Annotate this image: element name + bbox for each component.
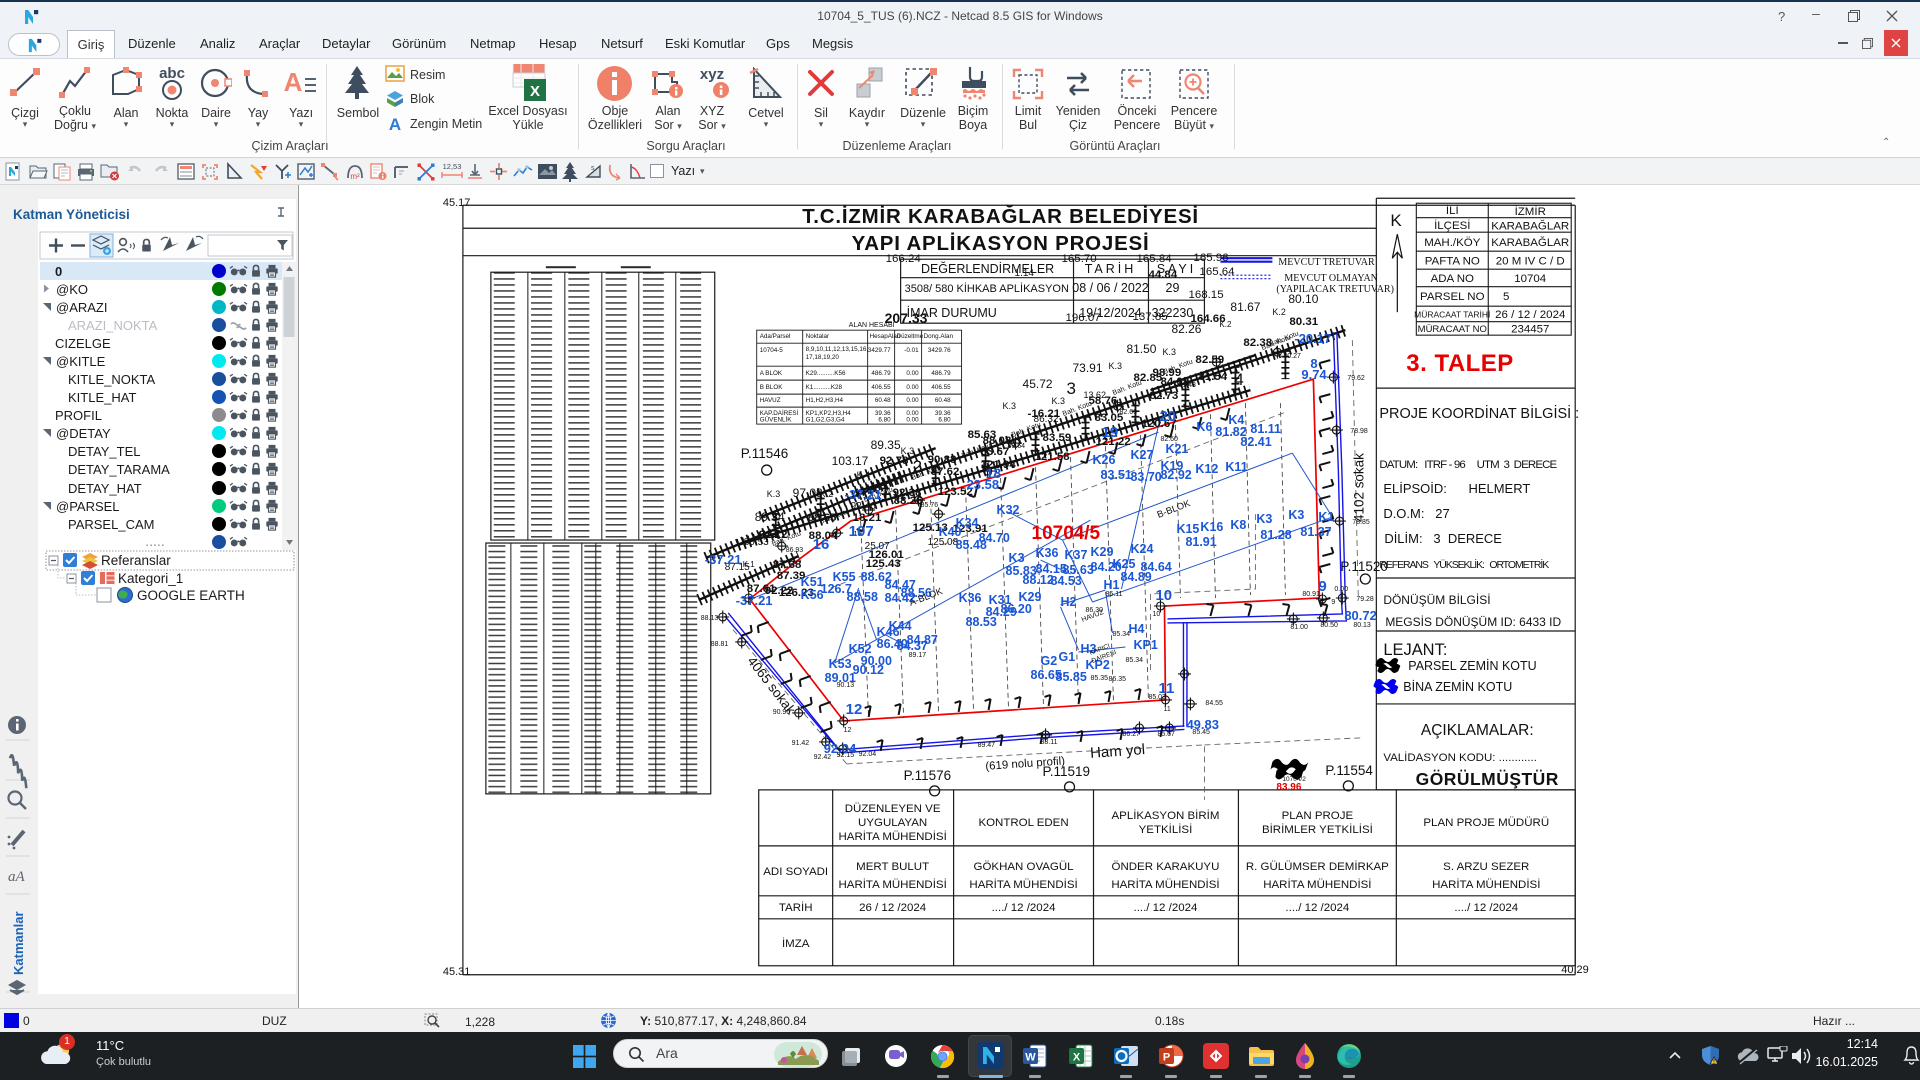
svg-text:K36: K36 <box>1036 546 1059 560</box>
svg-text:H4: H4 <box>1128 622 1144 636</box>
svg-text:K19: K19 <box>1160 459 1183 473</box>
svg-text:.....: ..... <box>145 533 164 549</box>
svg-text:88.26: 88.26 <box>894 495 923 507</box>
svg-text:89.34: 89.34 <box>755 510 785 524</box>
svg-text:89.35: 89.35 <box>871 438 901 452</box>
svg-text:81.67: 81.67 <box>1230 300 1260 314</box>
svg-text:82.41: 82.41 <box>1240 435 1271 449</box>
svg-text:26 / 12 /2024: 26 / 12 /2024 <box>859 902 927 914</box>
svg-text:AÇIKLAMALAR:: AÇIKLAMALAR: <box>1421 722 1534 739</box>
svg-text:B-BLOK: B-BLOK <box>1156 498 1193 521</box>
svg-text:K1: K1 <box>1318 510 1334 524</box>
svg-text:3429.77: 3429.77 <box>868 347 891 354</box>
svg-text:@DETAY: @DETAY <box>56 426 111 441</box>
svg-text:X: X <box>530 83 540 100</box>
svg-text:PROFIL: PROFIL <box>55 408 102 423</box>
svg-text:APLİKASYON BİRİM: APLİKASYON BİRİM <box>1112 809 1220 822</box>
svg-text:KARABAĞLAR: KARABAĞLAR <box>1491 236 1569 249</box>
svg-text:92.04: 92.04 <box>859 751 877 758</box>
svg-text:0.00: 0.00 <box>906 384 919 391</box>
svg-text:@ARAZI: @ARAZI <box>56 300 107 315</box>
svg-text:T.C.İZMİR KARABAĞLAR BELEDİYES: T.C.İZMİR KARABAĞLAR BELEDİYESİ <box>802 204 1199 228</box>
svg-text:88.12: 88.12 <box>1023 573 1054 587</box>
svg-text:88.81: 88.81 <box>711 641 729 648</box>
svg-text:80.91: 80.91 <box>1302 591 1320 598</box>
svg-text:26 / 12 / 2024: 26 / 12 / 2024 <box>1495 309 1566 321</box>
svg-text:-37.21: -37.21 <box>705 552 742 567</box>
svg-text:KARABAĞLAR: KARABAĞLAR <box>1491 220 1569 233</box>
svg-text:MEGSİS DÖNÜŞÜM ID: 6433 ID: MEGSİS DÖNÜŞÜM ID: 6433 ID <box>1385 615 1561 629</box>
svg-text:İZMİR: İZMİR <box>1515 205 1546 218</box>
svg-text:-0.01: -0.01 <box>904 347 919 354</box>
svg-text:K16: K16 <box>1200 520 1223 534</box>
svg-text:84.87: 84.87 <box>907 633 938 647</box>
svg-text:79.28: 79.28 <box>1356 596 1374 603</box>
svg-text:YAPI APLİKASYON PROJESİ: YAPI APLİKASYON PROJESİ <box>852 232 1150 255</box>
svg-text:H1: H1 <box>1104 578 1120 592</box>
svg-text:84.55: 84.55 <box>1205 700 1223 707</box>
svg-text:81.91: 81.91 <box>1185 535 1216 549</box>
svg-text:LEJANT:: LEJANT: <box>1383 641 1447 659</box>
svg-text:92.46: 92.46 <box>851 501 876 512</box>
svg-text:81.54: 81.54 <box>1198 371 1227 383</box>
svg-text:@KITLE: @KITLE <box>56 354 106 369</box>
svg-text:165.84: 165.84 <box>1136 253 1172 265</box>
svg-text:REFERANS YÜKSEKLİK: ORTOME: REFERANS YÜKSEKLİK: ORTOMETRİK <box>1379 558 1549 571</box>
svg-text:K.2: K.2 <box>1272 307 1286 317</box>
svg-text:137.85: 137.85 <box>1132 311 1167 323</box>
svg-text:ADI SOYADI: ADI SOYADI <box>763 866 828 878</box>
svg-text:83.70: 83.70 <box>1130 470 1161 484</box>
svg-text:19: 19 <box>1102 424 1119 441</box>
svg-text:KP1: KP1 <box>1133 638 1157 652</box>
svg-text:K25: K25 <box>1112 557 1135 571</box>
svg-text:83.51: 83.51 <box>1101 468 1132 482</box>
svg-text:BİNA ZEMİN KOTU: BİNA ZEMİN KOTU <box>1403 680 1512 694</box>
svg-text:90.12: 90.12 <box>853 663 884 677</box>
svg-text:16: 16 <box>813 536 830 553</box>
svg-text:A: A <box>284 67 303 97</box>
svg-text:10704-5: 10704-5 <box>760 347 784 354</box>
svg-text:Katman Yöneticisi: Katman Yöneticisi <box>13 207 130 222</box>
svg-text:0.00: 0.00 <box>906 397 919 404</box>
svg-text:-37.21: -37.21 <box>845 487 882 502</box>
svg-text:K: K <box>1390 211 1402 230</box>
svg-text:23.58: 23.58 <box>967 477 1000 492</box>
svg-text:K36: K36 <box>959 591 982 605</box>
svg-text:0.00: 0.00 <box>1334 586 1348 593</box>
svg-text:xyz: xyz <box>700 66 724 83</box>
svg-text:KONTROL EDEN: KONTROL EDEN <box>978 817 1068 829</box>
svg-text:KITLE_HAT: KITLE_HAT <box>68 390 136 405</box>
svg-text:K34: K34 <box>956 516 979 530</box>
svg-text:12: 12 <box>846 701 863 718</box>
svg-text:80.10: 80.10 <box>1288 292 1318 306</box>
svg-text:60.48: 60.48 <box>875 397 891 404</box>
svg-text:B BLOK: B BLOK <box>760 384 784 391</box>
svg-text:K8: K8 <box>1230 518 1246 532</box>
svg-text:81.11: 81.11 <box>1250 422 1281 436</box>
svg-text:YETKİLİSİ: YETKİLİSİ <box>1139 823 1193 836</box>
svg-text:abc: abc <box>159 65 185 82</box>
svg-text:83.59: 83.59 <box>1043 432 1072 444</box>
svg-text:92.04: 92.04 <box>824 741 857 756</box>
svg-text:PROJE KOORDİNAT BİLGİSİ :: PROJE KOORDİNAT BİLGİSİ : <box>1379 404 1579 422</box>
svg-text:0.00: 0.00 <box>906 370 919 377</box>
svg-text:84.53: 84.53 <box>1051 574 1082 588</box>
svg-text:PARSEL_CAM: PARSEL_CAM <box>68 517 154 532</box>
svg-text:K15: K15 <box>1176 522 1199 536</box>
svg-text:@KO: @KO <box>56 282 88 297</box>
svg-text:11: 11 <box>1163 706 1170 713</box>
svg-text:HARİTA MÜHENDİSİ: HARİTA MÜHENDİSİ <box>1432 878 1540 891</box>
svg-text:-16.21: -16.21 <box>1028 408 1061 420</box>
svg-text:K.3: K.3 <box>1003 401 1016 411</box>
svg-text:125.43: 125.43 <box>866 558 901 570</box>
svg-text:K37: K37 <box>1065 548 1088 562</box>
svg-text:..../ 12 /2024: ..../ 12 /2024 <box>1134 902 1198 914</box>
svg-text:W: W <box>1025 1052 1036 1064</box>
svg-text:DETAY_TEL: DETAY_TEL <box>68 444 140 459</box>
svg-text:DÜZENLEYEN VE: DÜZENLEYEN VE <box>845 803 941 815</box>
svg-text:3. TALEP: 3. TALEP <box>1406 350 1513 377</box>
svg-text:84.70: 84.70 <box>979 531 1010 545</box>
svg-text:12,53: 12,53 <box>443 162 462 171</box>
svg-text:DETAY_TARAMA: DETAY_TARAMA <box>68 462 170 477</box>
svg-text:R. GÜLÜMSER DEMİRKAP: R. GÜLÜMSER DEMİRKAP <box>1246 860 1389 873</box>
svg-text:Kategori_1: Kategori_1 <box>118 571 183 586</box>
svg-text:0.00: 0.00 <box>906 417 919 424</box>
svg-text:45.17: 45.17 <box>443 197 471 209</box>
svg-text:K24: K24 <box>1130 542 1153 556</box>
svg-text:K.3: K.3 <box>1162 347 1176 357</box>
svg-text:P.11520: P.11520 <box>1340 559 1388 574</box>
svg-text:45.72: 45.72 <box>1023 377 1053 391</box>
svg-text:80.50: 80.50 <box>1320 622 1338 629</box>
svg-text:85.76: 85.76 <box>921 502 939 509</box>
svg-text:-20.17: -20.17 <box>1294 331 1331 346</box>
svg-text:82.59: 82.59 <box>1195 354 1224 366</box>
svg-text:..../ 12 /2024: ..../ 12 /2024 <box>992 902 1056 914</box>
svg-text:81.43: 81.43 <box>1178 382 1196 389</box>
svg-text:85.67: 85.67 <box>1157 731 1175 738</box>
svg-text:80.13: 80.13 <box>1353 622 1371 629</box>
svg-text:8,9,10,11,12,13,15,16,: 8,9,10,11,12,13,15,16, <box>806 346 869 353</box>
svg-text:196.07: 196.07 <box>1066 312 1101 324</box>
svg-text:Bah. Kotu: Bah. Kotu <box>1112 379 1143 397</box>
svg-text:X: X <box>1073 1052 1081 1064</box>
svg-text:K.2: K.2 <box>820 489 834 499</box>
svg-text:PLAN PROJE: PLAN PROJE <box>1282 810 1354 822</box>
svg-text:165.70: 165.70 <box>1062 253 1097 265</box>
svg-text:88.53: 88.53 <box>966 615 997 629</box>
svg-text:H1,H2,H3,H4: H1,H2,H3,H4 <box>806 397 844 404</box>
svg-text:20: 20 <box>1159 408 1176 425</box>
svg-text:ÖNDER KARAKUYU: ÖNDER KARAKUYU <box>1112 861 1220 873</box>
svg-text:MEVCUT TRETUVAR: MEVCUT TRETUVAR <box>1278 257 1375 268</box>
svg-text:92.78: 92.78 <box>880 455 909 467</box>
svg-text:82.73: 82.73 <box>1149 390 1178 402</box>
svg-text:K3: K3 <box>1009 551 1025 565</box>
svg-text:UYGULAYAN: UYGULAYAN <box>858 817 927 829</box>
svg-text:HARİTA MÜHENDİSİ: HARİTA MÜHENDİSİ <box>839 830 947 843</box>
svg-text:A BLOK: A BLOK <box>760 370 783 377</box>
svg-text:Ham yol: Ham yol <box>1090 741 1146 762</box>
svg-text:K21: K21 <box>1165 442 1188 456</box>
svg-text:s: s <box>591 165 595 172</box>
svg-text:MÜRACAAT NO: MÜRACAAT NO <box>1418 324 1487 335</box>
svg-text:K1..........K28: K1..........K28 <box>806 384 843 391</box>
svg-text:12: 12 <box>844 727 852 734</box>
svg-text:89.01: 89.01 <box>825 671 856 685</box>
svg-text:44.84: 44.84 <box>1148 269 1177 281</box>
svg-text:234457: 234457 <box>1511 324 1549 336</box>
svg-text:84.64: 84.64 <box>1140 560 1171 574</box>
svg-text:..../ 12 /2024: ..../ 12 /2024 <box>1285 902 1349 914</box>
svg-text:PLAN PROJE MÜDÜRÜ: PLAN PROJE MÜDÜRÜ <box>1423 817 1549 829</box>
svg-text:HAVUZ: HAVUZ <box>760 397 781 404</box>
svg-text:91.42: 91.42 <box>792 740 810 747</box>
svg-text:K.3: K.3 <box>767 489 781 499</box>
svg-text:121.58: 121.58 <box>1035 451 1071 463</box>
svg-text:İLÇESİ: İLÇESİ <box>1434 219 1470 232</box>
svg-text:A: A <box>389 115 401 133</box>
svg-text:78.98: 78.98 <box>1350 428 1368 435</box>
svg-text:486.79: 486.79 <box>871 370 891 377</box>
svg-text:ARAZI_NOKTA: ARAZI_NOKTA <box>68 318 158 333</box>
svg-text:P.11576: P.11576 <box>904 768 952 783</box>
svg-text:85.35: 85.35 <box>1091 675 1109 682</box>
svg-text:GÖRÜLMÜŞTÜR: GÖRÜLMÜŞTÜR <box>1416 769 1559 789</box>
svg-text:20 M IV C / D: 20 M IV C / D <box>1496 256 1565 268</box>
svg-text:BİRİMLER YETKİLİSİ: BİRİMLER YETKİLİSİ <box>1262 823 1373 836</box>
svg-text:D.O.M: 27: D.O.M: 27 <box>1383 506 1449 521</box>
svg-text:ADA NO: ADA NO <box>1431 273 1474 285</box>
svg-text:K32: K32 <box>997 503 1020 517</box>
svg-text:PAFTA NO: PAFTA NO <box>1425 256 1480 268</box>
svg-text:17,18,19,20: 17,18,19,20 <box>806 354 840 361</box>
svg-text:58.76: 58.76 <box>1089 395 1118 407</box>
svg-text:MERT BULUT: MERT BULUT <box>856 861 929 873</box>
svg-text:164.66: 164.66 <box>1190 313 1225 325</box>
svg-text:85.34: 85.34 <box>1112 631 1130 638</box>
svg-text:90.88: 90.88 <box>928 454 957 466</box>
svg-text:HARİTA MÜHENDİSİ: HARİTA MÜHENDİSİ <box>839 878 947 891</box>
svg-text:HARİTA MÜHENDİSİ: HARİTA MÜHENDİSİ <box>969 878 1077 891</box>
svg-text:K11: K11 <box>1225 460 1247 474</box>
svg-text:S. ARZU SEZER: S. ARZU SEZER <box>1443 861 1529 873</box>
svg-text:6.80: 6.80 <box>878 417 891 424</box>
svg-text:8: 8 <box>1310 356 1317 371</box>
svg-text:VALİDASYON KODU: ............: VALİDASYON KODU: ............ <box>1383 751 1537 764</box>
svg-text:aA: aA <box>8 869 26 885</box>
svg-text:DETAY_HAT: DETAY_HAT <box>68 481 142 496</box>
svg-text:DATUM: ITRF - 96 UTM 3: DATUM: ITRF - 96 UTM 3 DERECE <box>1379 459 1557 471</box>
svg-text:80.31: 80.31 <box>1289 316 1318 328</box>
svg-text:K.1: K.1 <box>743 560 756 569</box>
svg-text:G1: G1 <box>1059 650 1076 664</box>
svg-text:165.64: 165.64 <box>1199 266 1235 278</box>
svg-text:80.27: 80.27 <box>1283 353 1301 360</box>
svg-text:126.7: 126.7 <box>821 582 852 596</box>
svg-text:CIZELGE: CIZELGE <box>55 336 111 351</box>
svg-text:168.15: 168.15 <box>1188 289 1223 301</box>
svg-text:K3: K3 <box>1256 512 1272 526</box>
svg-text:G2: G2 <box>1041 654 1058 668</box>
svg-text:m²: m² <box>350 172 360 181</box>
svg-text:GOOGLE EARTH: GOOGLE EARTH <box>137 588 245 603</box>
svg-text:5: 5 <box>1503 291 1509 303</box>
svg-text:H2: H2 <box>1061 595 1077 609</box>
svg-text:10704/5: 10704/5 <box>1032 523 1101 544</box>
svg-text:45.31: 45.31 <box>443 966 471 978</box>
svg-text:K26: K26 <box>1093 453 1116 467</box>
svg-text:Düzeltme: Düzeltme <box>897 333 924 340</box>
svg-text:486.79: 486.79 <box>931 370 951 377</box>
svg-text:406.55: 406.55 <box>931 384 951 391</box>
svg-text:İLİ: İLİ <box>1446 204 1459 217</box>
svg-text:83.64: 83.64 <box>1008 443 1026 450</box>
svg-text:Dong.Alan: Dong.Alan <box>924 333 954 340</box>
svg-text:-37.21: -37.21 <box>736 593 773 608</box>
svg-text:107: 107 <box>849 523 874 540</box>
svg-text:86.35: 86.35 <box>1109 676 1127 683</box>
svg-text:K.3: K.3 <box>1109 361 1123 371</box>
svg-text:GÖKHAN OVAGÜL: GÖKHAN OVAGÜL <box>974 861 1074 873</box>
svg-text:K.4: K.4 <box>857 470 870 480</box>
svg-text:G1,G2,G3,G4: G1,G2,G3,G4 <box>806 417 845 424</box>
svg-text:9: 9 <box>1331 599 1335 606</box>
svg-text:Referanslar: Referanslar <box>101 553 171 568</box>
svg-text:K53: K53 <box>829 657 852 671</box>
svg-text:3508/ 580 KİHKAB APLİKASYON: 3508/ 580 KİHKAB APLİKASYON <box>905 282 1069 295</box>
svg-text:85.11: 85.11 <box>1106 591 1123 598</box>
svg-text:P.11546: P.11546 <box>741 446 788 461</box>
svg-text:89.17: 89.17 <box>909 652 927 659</box>
svg-text:K27: K27 <box>1130 448 1153 462</box>
svg-text:165.96: 165.96 <box>1193 252 1228 264</box>
svg-text:ELİPSOİD: HELMERT: ELİPSOİD: HELMERT <box>1383 481 1530 496</box>
svg-text:DÖNÜŞÜM BİLGİSİ: DÖNÜŞÜM BİLGİSİ <box>1383 593 1490 607</box>
svg-text:11: 11 <box>1158 680 1174 697</box>
svg-text:83.96: 83.96 <box>1276 782 1301 793</box>
svg-text:GÜVENLİK: GÜVENLİK <box>760 415 793 424</box>
svg-text:..../ 12 /2024: ..../ 12 /2024 <box>1454 902 1518 914</box>
svg-text:86.27: 86.27 <box>1122 731 1140 738</box>
svg-text:3429.76: 3429.76 <box>928 347 951 354</box>
svg-text:Noktalar: Noktalar <box>806 333 829 340</box>
svg-text:207.33: 207.33 <box>885 310 928 326</box>
svg-text:97.08: 97.08 <box>793 486 823 500</box>
svg-text:K12: K12 <box>1195 462 1218 476</box>
svg-text:K29..........K56: K29..........K56 <box>806 370 846 377</box>
svg-text:DEĞERLENDİRMELER: DEĞERLENDİRMELER <box>921 261 1054 276</box>
svg-text:!: ! <box>1713 1059 1715 1065</box>
svg-text:73.91: 73.91 <box>1073 361 1103 375</box>
svg-text:KITLE_NOKTA: KITLE_NOKTA <box>68 372 156 387</box>
svg-text:49.83: 49.83 <box>1186 717 1219 732</box>
svg-text:PARSEL NO: PARSEL NO <box>1420 291 1485 303</box>
svg-text:K29: K29 <box>1091 545 1114 559</box>
svg-text:10: 10 <box>1155 587 1172 604</box>
svg-text:82.66: 82.66 <box>1119 409 1137 416</box>
svg-text:10704: 10704 <box>1514 273 1547 285</box>
svg-text:MEVCUT OLMAYAN: MEVCUT OLMAYAN <box>1284 273 1377 284</box>
svg-text:60.48: 60.48 <box>935 397 951 404</box>
svg-text:166.24: 166.24 <box>886 253 922 265</box>
svg-text:K6: K6 <box>1196 420 1212 434</box>
svg-text:81.50: 81.50 <box>1126 342 1156 356</box>
svg-text:PARSEL ZEMİN KOTU: PARSEL ZEMİN KOTU <box>1408 659 1536 673</box>
svg-text:80.72: 80.72 <box>1344 608 1377 623</box>
svg-text:6.80: 6.80 <box>938 417 951 424</box>
svg-text:86.20: 86.20 <box>1001 602 1032 616</box>
svg-text:9: 9 <box>1318 578 1326 595</box>
svg-text:10: 10 <box>1152 611 1160 618</box>
svg-text:@PARSEL: @PARSEL <box>56 499 120 514</box>
svg-text:4065 sokak: 4065 sokak <box>744 654 798 718</box>
svg-text:88.13: 88.13 <box>701 615 719 622</box>
svg-text:Katmanlar: Katmanlar <box>11 911 26 975</box>
svg-text:89.47: 89.47 <box>978 742 996 749</box>
svg-text:81.37: 81.37 <box>1300 525 1331 539</box>
svg-text:103.17: 103.17 <box>832 454 869 468</box>
svg-text:P.11554: P.11554 <box>1325 763 1373 778</box>
svg-text:88.11: 88.11 <box>1041 739 1058 746</box>
svg-text:Ada/Parsel: Ada/Parsel <box>760 333 791 340</box>
svg-text:3: 3 <box>1067 379 1076 398</box>
svg-text:TARİH: TARİH <box>779 901 813 914</box>
svg-text:81.28: 81.28 <box>1260 528 1291 542</box>
svg-text:HARİTA MÜHENDİSİ: HARİTA MÜHENDİSİ <box>1111 878 1219 891</box>
svg-text:85.34: 85.34 <box>1125 657 1143 664</box>
svg-text:0: 0 <box>55 264 62 279</box>
svg-text:P: P <box>1163 1052 1170 1064</box>
svg-text:08 / 06 / 2022: 08 / 06 / 2022 <box>1072 281 1148 295</box>
svg-text:K.3: K.3 <box>1052 396 1065 406</box>
svg-text:HARİTA MÜHENDİSİ: HARİTA MÜHENDİSİ <box>1263 878 1371 891</box>
svg-text:4102 sokak: 4102 sokak <box>1351 453 1366 522</box>
svg-text:81.00: 81.00 <box>1290 624 1308 631</box>
svg-text:4: 4 <box>1234 370 1243 389</box>
svg-text:85.85: 85.85 <box>1056 670 1087 684</box>
svg-text:MAH./KÖY: MAH./KÖY <box>1424 237 1480 249</box>
svg-text:86.93: 86.93 <box>786 547 804 554</box>
svg-text:29: 29 <box>1166 281 1180 295</box>
svg-text:406.55: 406.55 <box>871 384 891 391</box>
svg-text:MÜRACAAT TARİHİ: MÜRACAAT TARİHİ <box>1414 310 1490 320</box>
svg-text:1.14: 1.14 <box>1015 268 1035 279</box>
svg-text:K3: K3 <box>1288 508 1304 522</box>
svg-text:İMZA: İMZA <box>782 937 810 950</box>
svg-text:DİLİM: 3 DERECE: DİLİM: 3 DERECE <box>1384 531 1502 546</box>
svg-text:79.62: 79.62 <box>1347 375 1365 382</box>
